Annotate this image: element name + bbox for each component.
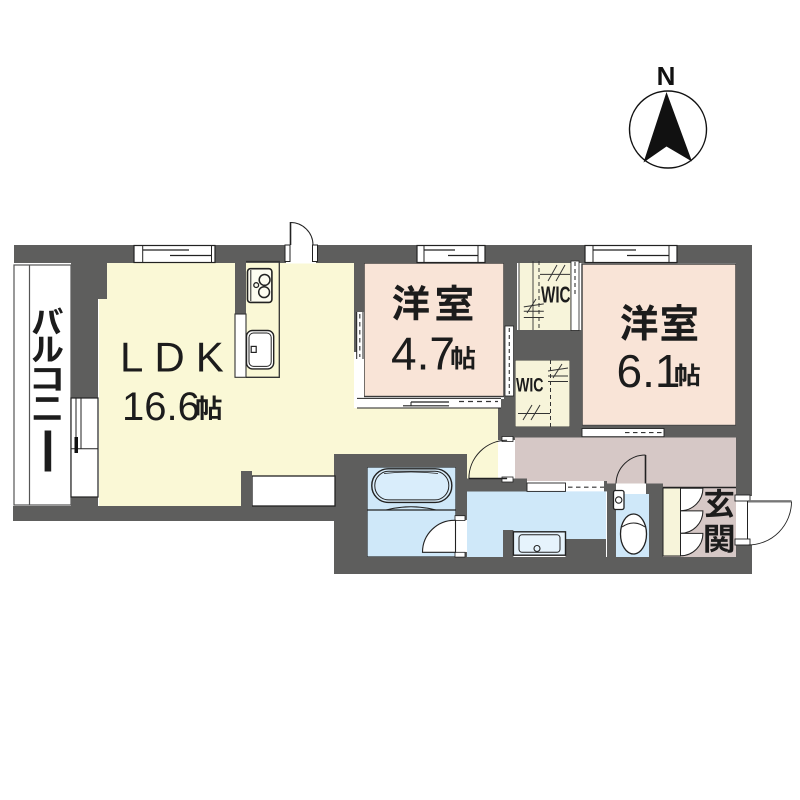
- svg-text:WIC: WIC: [516, 376, 544, 397]
- svg-text:N: N: [657, 61, 676, 91]
- svg-text:LDK: LDK: [120, 334, 235, 381]
- svg-text:16.6: 16.6: [122, 385, 200, 429]
- svg-text:WIC: WIC: [541, 282, 571, 308]
- svg-text:6.1: 6.1: [617, 345, 681, 397]
- svg-text:4.7: 4.7: [391, 328, 455, 380]
